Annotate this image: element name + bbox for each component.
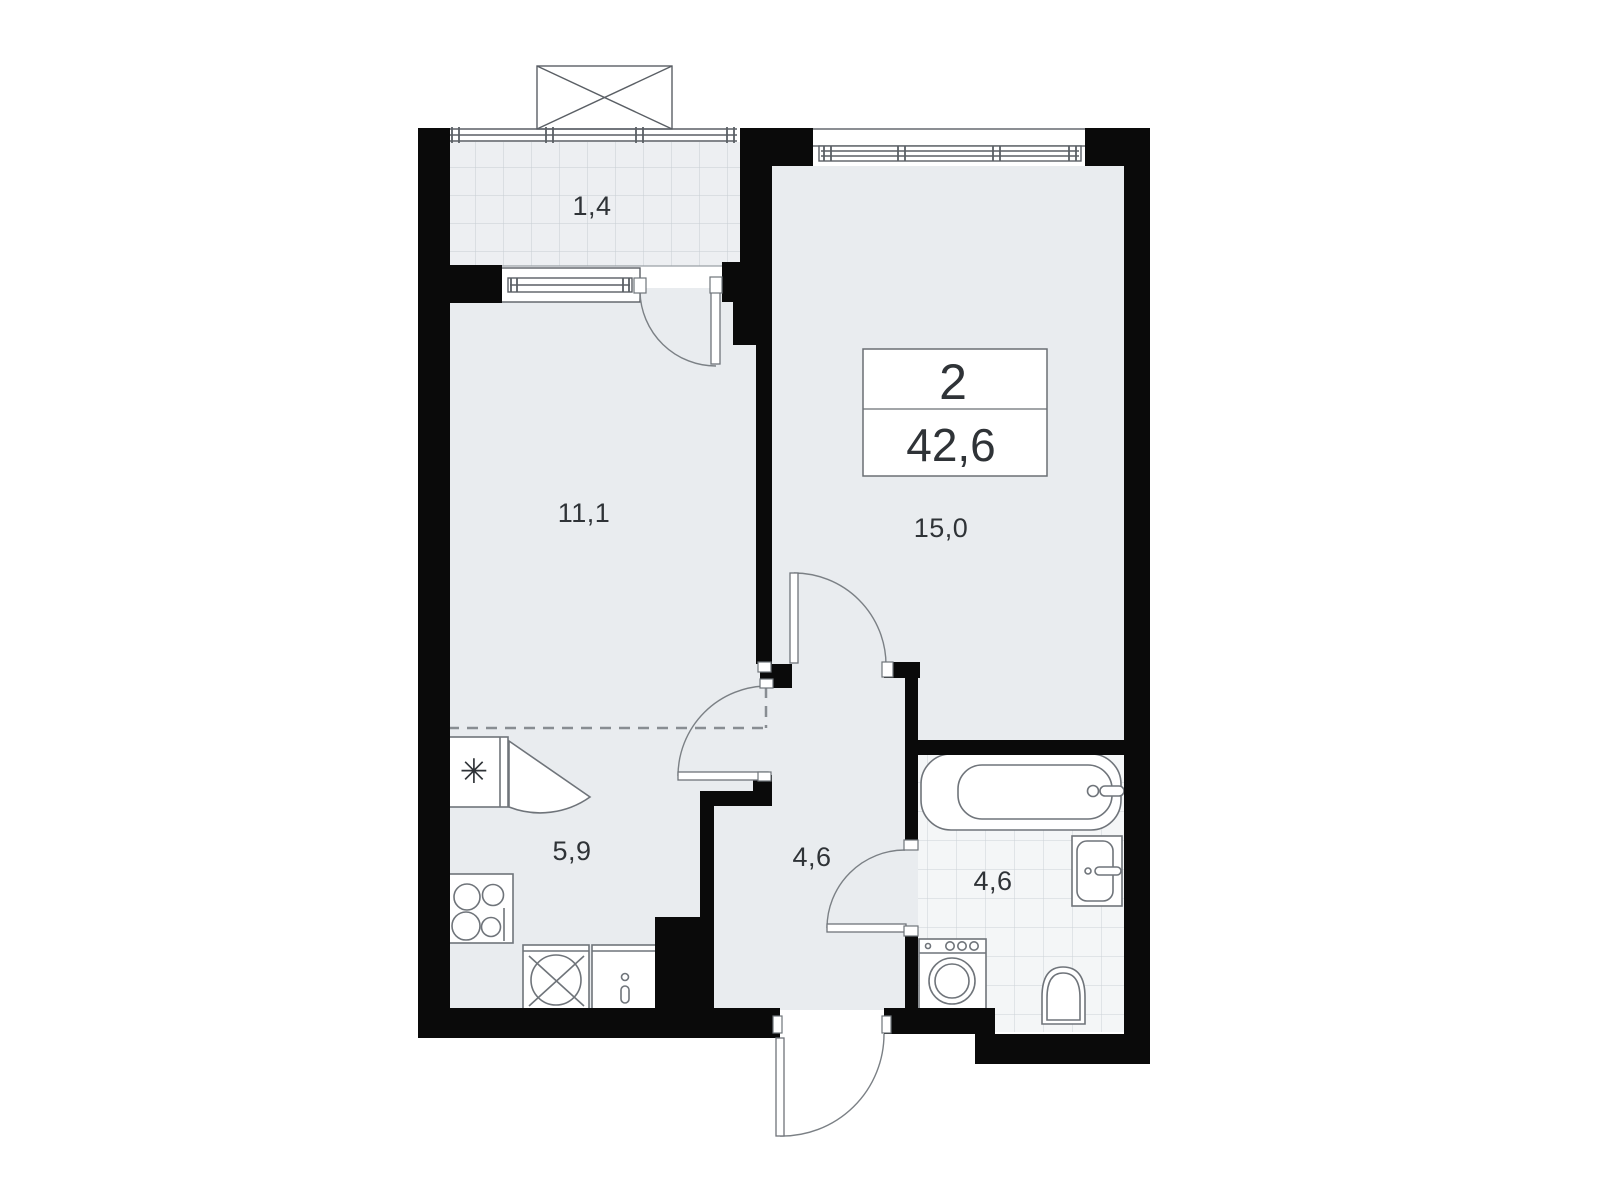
ventilation-shaft — [537, 66, 672, 129]
kitchen-door-leaf — [678, 772, 768, 780]
wall-bathroom-left-upper — [905, 662, 918, 850]
bedroom-door-leaf — [790, 573, 798, 663]
room-label-kitchen: 5,9 — [552, 836, 591, 866]
wall-left — [418, 128, 450, 1038]
floor-plan: ✳ — [0, 0, 1600, 1200]
wall-bottom-bathroom — [975, 1034, 1150, 1064]
room-label-hallway: 4,6 — [792, 842, 831, 872]
info-rooms-count: 2 — [939, 354, 967, 410]
entrance-door-leaf — [776, 1038, 784, 1136]
wall-bottom-kitchen — [418, 1008, 780, 1038]
wall-bathroom-top — [918, 740, 1124, 755]
balcony-railing — [450, 127, 737, 143]
stove — [448, 874, 513, 943]
room-label-balcony: 1,4 — [572, 191, 611, 221]
entrance-door-arc — [780, 1034, 884, 1136]
balcony-door-leaf — [711, 292, 720, 364]
wall-bottom-hall — [884, 1008, 995, 1034]
info-box: 2 42,6 — [863, 349, 1047, 476]
wall-balcony-right — [740, 128, 772, 268]
toilet — [1042, 967, 1085, 1024]
room-label-bedroom: 15,0 — [914, 513, 969, 543]
washbasin — [1072, 836, 1122, 906]
wall-bathroom-left-lower — [905, 928, 918, 1012]
room-label-bathroom: 4,6 — [973, 866, 1012, 896]
fridge-snowflake-icon: ✳ — [460, 753, 489, 791]
sink-cabinet — [592, 945, 656, 1010]
kitchen-sink — [523, 945, 589, 1010]
wall-living-bedroom — [756, 340, 772, 664]
bathroom-door-leaf — [827, 924, 906, 932]
bathtub — [921, 754, 1124, 830]
wall-right — [1124, 128, 1150, 1064]
bedroom-window — [812, 129, 1086, 161]
washing-machine — [919, 939, 986, 1009]
info-total-area: 42,6 — [906, 419, 996, 471]
floor-plan-page: ✳ — [0, 0, 1600, 1200]
room-label-living-room: 11,1 — [558, 498, 611, 528]
living-room-window — [500, 268, 640, 302]
